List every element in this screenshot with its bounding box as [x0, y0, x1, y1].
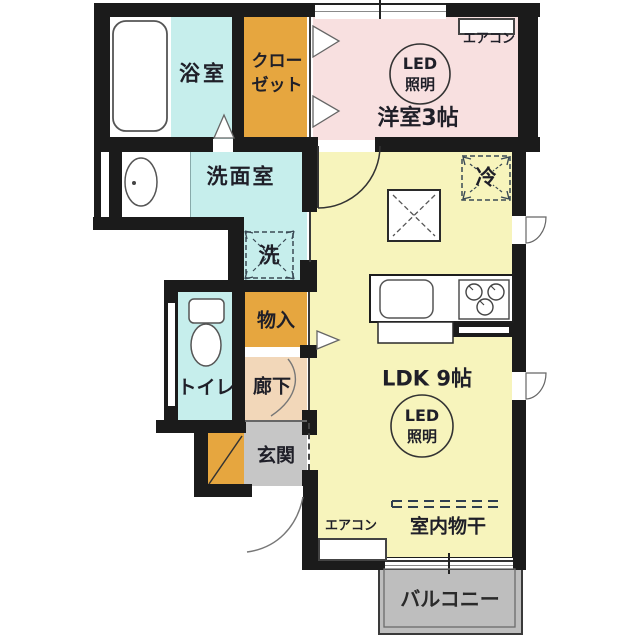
- shoe-cabinet-diagonal: [209, 436, 242, 484]
- casement-window-icon-2: [526, 373, 546, 399]
- folding-door-icon-closet-2: [313, 96, 339, 127]
- fridge-label: 冷: [476, 168, 497, 189]
- floor-plan: 浴室 クロー ゼット 洋室3帖 LED 照明 エアコン 洗面室 洗 冷 トイレ …: [0, 0, 640, 640]
- sink-icon: [125, 158, 157, 206]
- closet-label-line2: ゼット: [252, 78, 303, 95]
- led-label-ldk-line1: LED: [405, 408, 439, 424]
- indoor-drying-label: 室内物干: [410, 518, 486, 537]
- stove-icon: [459, 280, 509, 319]
- aircon-label-ldk: エアコン: [325, 520, 377, 533]
- aircon-label-western: エアコン: [463, 33, 515, 46]
- toilet-icon: [189, 299, 224, 366]
- storage-label: 物入: [257, 312, 295, 331]
- folding-door-icon-closet-1: [313, 26, 339, 57]
- toilet-label: トイレ: [177, 379, 234, 398]
- ldk-label: LDK 9帖: [382, 369, 472, 390]
- bathroom-label: 浴室: [179, 64, 227, 85]
- led-light-icon-western: [390, 44, 450, 104]
- bathtub-icon: [113, 21, 167, 131]
- aircon-box-ldk: [318, 538, 387, 561]
- led-label-western-line2: 照明: [405, 78, 435, 93]
- closet-label-line1: クロー: [252, 54, 303, 71]
- washer-space-label: 洗: [259, 246, 280, 267]
- led-label-ldk-line2: 照明: [407, 430, 437, 445]
- balcony-label: バルコニー: [400, 589, 500, 609]
- hallway-label: 廊下: [253, 378, 291, 397]
- entrance-label: 玄関: [257, 447, 295, 466]
- led-label-western-line1: LED: [403, 56, 437, 72]
- sink-drain-dot: [132, 181, 136, 185]
- ceiling-hatch-icon: [388, 190, 440, 241]
- folding-door-icon-storage: [317, 331, 339, 349]
- washroom-label: 洗面室: [207, 167, 276, 188]
- folding-door-icon-bathroom: [214, 115, 234, 138]
- kitchen-sink-icon: [380, 280, 433, 318]
- western-room-label: 洋室3帖: [377, 108, 458, 130]
- door-swing-arc-western-room: [318, 146, 380, 208]
- led-light-icon-ldk: [391, 395, 453, 457]
- drying-rack-icon: [392, 501, 498, 507]
- casement-window-icon-1: [526, 217, 546, 243]
- door-swing-arc-entrance: [247, 497, 303, 552]
- kitchen-lower-panel: [378, 322, 453, 343]
